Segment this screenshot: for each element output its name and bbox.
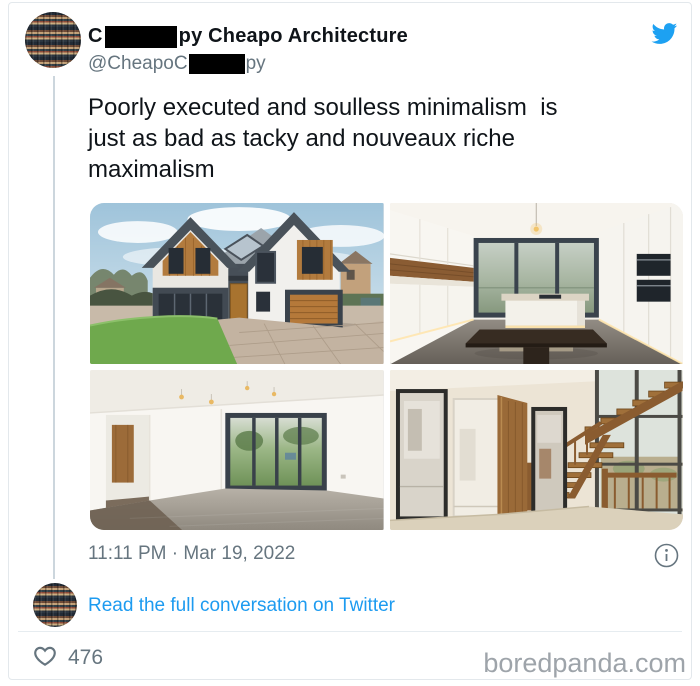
heart-outline-icon[interactable] — [32, 643, 58, 669]
author-name-prefix: C — [88, 25, 103, 48]
staircase-hallway-illustration — [390, 370, 684, 531]
censor-bar-name — [105, 26, 177, 48]
tweet-photo-kitchen[interactable] — [390, 203, 684, 364]
author-handle-suffix: py — [246, 53, 266, 75]
tweet-photo-staircase-hallway[interactable] — [390, 370, 684, 531]
info-circle-icon[interactable] — [653, 542, 680, 569]
thread-line — [53, 76, 55, 579]
tweet-photo-grid — [90, 203, 683, 530]
tweet-photo-living-room[interactable] — [90, 370, 384, 531]
tweet-timestamp[interactable]: 11:11 PM · Mar 19, 2022 — [88, 543, 295, 565]
author-avatar[interactable] — [25, 12, 81, 68]
author-avatar-small[interactable] — [33, 583, 77, 627]
author-handle[interactable]: @CheapoC py — [88, 53, 266, 75]
house-exterior-illustration — [90, 203, 384, 364]
tweet-text-line: just as bad as tacky and nouveaux riche — [88, 123, 673, 154]
living-room-illustration — [90, 370, 384, 531]
author-handle-prefix: @CheapoC — [88, 53, 188, 75]
read-conversation-link[interactable]: Read the full conversation on Twitter — [88, 595, 395, 617]
kitchen-illustration — [390, 203, 684, 364]
tweet-photo-house-exterior[interactable] — [90, 203, 384, 364]
tweet-text-line: Poorly executed and soulless minimalism … — [88, 92, 673, 123]
tweet-text-line: maximalism — [88, 154, 673, 185]
tweet-text: Poorly executed and soulless minimalism … — [88, 92, 673, 185]
author-name-suffix: py Cheapo Architecture — [179, 25, 408, 48]
like-count[interactable]: 476 — [68, 646, 103, 670]
twitter-bird-icon[interactable] — [648, 20, 680, 47]
watermark: boredpanda.com — [483, 648, 686, 679]
censor-bar-handle — [189, 54, 245, 74]
tweet-card: C py Cheapo Architecture @CheapoC py Poo… — [0, 0, 700, 686]
author-name[interactable]: C py Cheapo Architecture — [88, 25, 408, 48]
footer-divider — [18, 631, 682, 632]
